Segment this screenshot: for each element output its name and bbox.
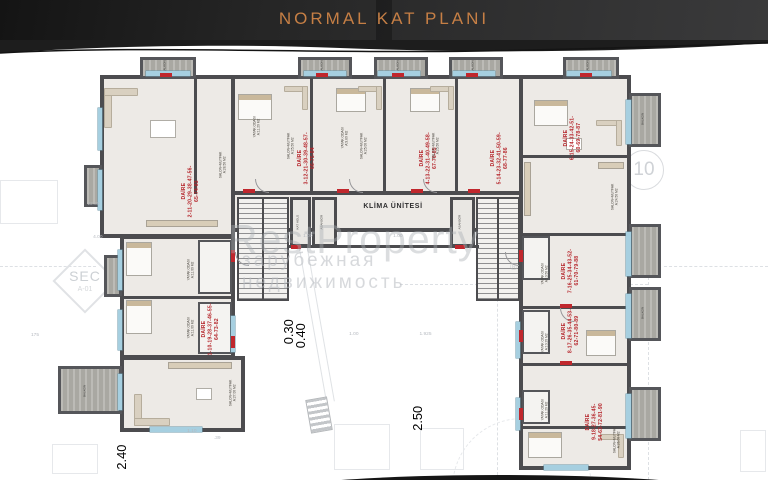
site-structure [52,444,98,474]
room-label: SALON+MUTFAK A:27.00 M2 [229,376,237,410]
room-label: SALON+MUTFAK A:25.50 M2 [287,128,295,163]
dimension-label: .39 [214,436,221,441]
apartment-label: DAİRE 6-15-24-33-42-51-60-69-78-87 [564,113,583,164]
window [626,394,631,438]
sofa [376,86,382,110]
floor-plan-page: 10 SEC A-01 BALKON BALKON BALKON BALKON … [0,0,768,480]
wall [120,296,235,299]
site-structure [334,424,390,470]
hvac-unit-label: KLİMA ÜNİTESİ [330,203,456,210]
apartment-label: DAİRE 8-17-26-35-44-53-62-71-80-89 [562,306,581,355]
apartment-floor [100,75,235,238]
page-title: NORMAL KAT PLANI [0,9,768,29]
bed [126,242,152,276]
apartment-label: DAİRE 9-18-27-36-45-54-63-72-81-90 [586,400,605,444]
sofa [616,120,622,146]
door-marker [560,361,572,365]
balcony [629,224,661,278]
window [98,108,102,150]
room-label: SALON+MUTFAK A:28.50 M2 [219,145,227,186]
room-label: YATAK ODASI A:10.50 M2 [541,259,549,290]
wall [522,363,628,366]
dimension-label: 1.925 [420,332,432,337]
sofa [302,86,308,110]
crane-base [305,396,333,433]
apartment-label: DAİRE 7-16-25-34-43-52-61-70-79-88 [562,246,581,295]
room-label: YATAK ODASI A:11.20 M2 [253,111,261,143]
table [150,120,176,138]
bed [126,300,152,334]
room-label: SALON+MUTFAK A:25.50 M2 [432,128,440,163]
room-label: SALON+MUTFAK A:24.50 M2 [611,180,619,214]
door-marker [392,73,404,77]
dimension-label: 0.40 [295,334,309,348]
kitchen-counter [524,162,531,216]
door-marker [160,73,172,77]
door-marker [466,73,478,77]
window [626,100,631,144]
apartment-label: DAİRE 3-12-21-30-39-48-57-66-75-84 [298,131,317,185]
watermark-subtitle: зарубежная недвижимость [242,250,518,294]
door-marker [519,408,523,420]
grid-reference-number: 10 [633,159,654,181]
bathroom [198,240,232,294]
door-marker [243,189,255,193]
door-marker [468,189,480,193]
apartment-label: DAİRE 1-10-19-28-37-46-55-64-73-82 [202,301,221,357]
dimension-label: 22.30 [88,202,100,207]
dimension-label: 2.40 [116,450,130,469]
table [196,388,212,400]
apartment-label: DAİRE 5-14-23-32-41-50-59-68-77-86 [491,131,510,185]
door-marker [337,189,349,193]
wall [522,426,628,429]
balcony-label: BALKON [642,307,645,320]
dimension-label: 4.00 [93,235,102,240]
header-band: NORMAL KAT PLANI [0,0,768,40]
door-marker [580,73,592,77]
dimension-label: 2.50 [412,413,426,431]
dimension-label: 1.00 [349,332,358,337]
window [626,294,631,338]
window [118,374,122,410]
room-label: YATAK ODASI A:11.20 M2 [541,395,549,426]
room-label: YATAK ODASI A:11.00 M2 [187,255,195,286]
apartment-label: DAİRE 2-11-20-29-38-47-56-65-74-83 [182,161,201,221]
kitchen-counter [598,162,624,169]
door-marker [411,189,423,193]
room-label: SALON+MUTFAK A:25.00 M2 [360,128,368,163]
sofa [104,88,138,96]
balcony-label: BALKON [84,385,87,398]
window [544,465,588,470]
door-marker [316,73,328,77]
room-label: YATAK ODASI A:11.00 M2 [187,313,195,344]
door-marker [519,330,523,342]
watermark-registered-icon: ® [510,262,517,273]
site-line [664,266,768,267]
site-structure [0,180,58,224]
header-swoosh [0,40,768,54]
wall [383,78,386,195]
kitchen-counter [168,362,232,369]
sofa [134,418,170,426]
window [118,250,122,290]
balcony [629,387,661,441]
room-label: SALON+MUTFAK A:26.00 M2 [613,426,621,455]
balcony [58,366,122,414]
balcony-label: BALKON [642,113,645,126]
dimension-label: 175 [31,333,39,338]
room-label: YATAK ODASI A:9.80 M2 [341,124,349,153]
sofa [448,86,454,110]
window [118,310,122,350]
wall [455,78,458,195]
bed [586,330,616,356]
footer-swoosh [260,475,740,480]
kitchen-counter [146,220,218,227]
bed [528,432,562,458]
window [626,232,631,276]
site-structure [740,430,766,472]
dimension-label: 1.10 [187,429,196,434]
room-label: YATAK ODASI A:10.20 M2 [541,327,549,358]
door-marker [231,336,235,348]
